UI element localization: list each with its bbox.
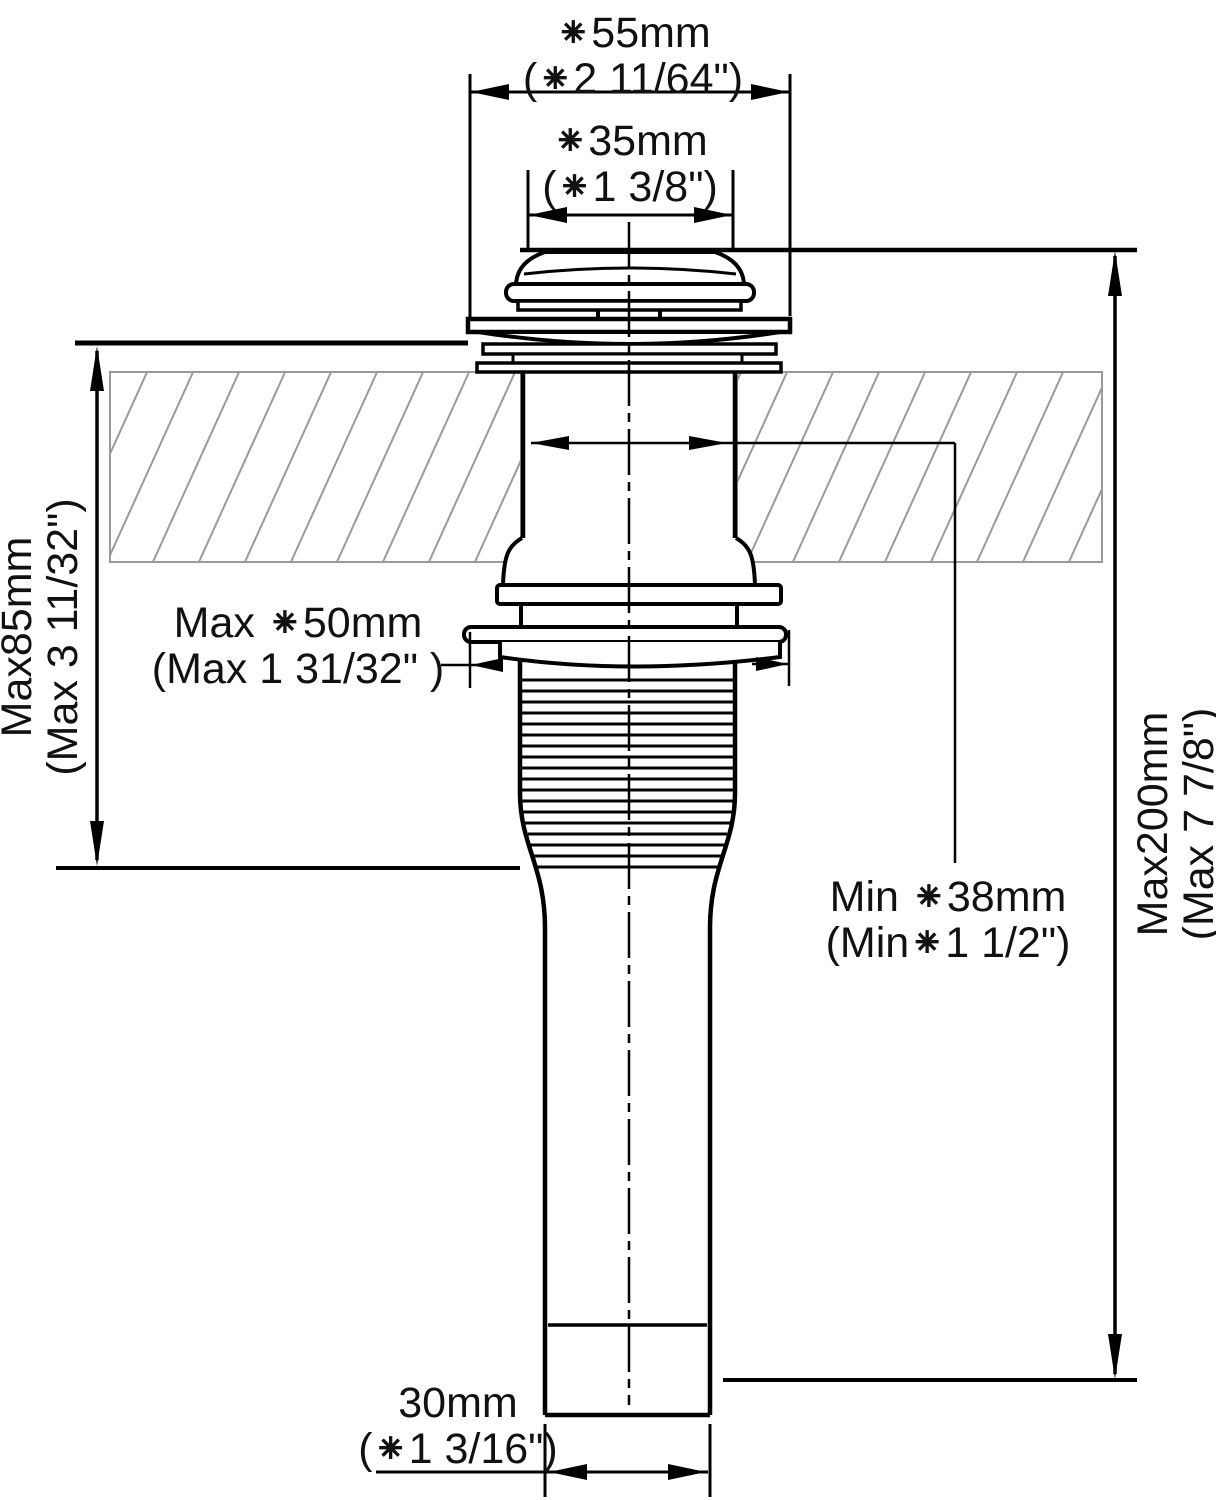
dim-label-imperial: (Max 7 7/8") [1176, 708, 1216, 941]
threaded-section [520, 660, 735, 1415]
dim-label-metric: Max ⁕50mm [152, 600, 445, 646]
dim-label-imperial: (Max 3 11/32") [40, 498, 86, 775]
dim-label-imperial: (Min⁕1 1/2") [826, 920, 1071, 966]
dim-label-min-hole-diameter: Min ⁕38mm (Min⁕1 1/2") [826, 874, 1071, 966]
dim-label-metric: Max200mm [1130, 708, 1176, 941]
countertop-left-section [60, 370, 608, 564]
dim-label-max-deck-thickness: Max85mm (Max 3 11/32") [0, 498, 86, 775]
locknut-assembly [464, 585, 786, 667]
dim-label-metric: Max85mm [0, 498, 40, 775]
dim-label-top-outer-diameter: ⁕55mm (⁕2 11/64") [523, 10, 743, 102]
dim-label-tailpipe-diameter: 30mm (⁕1 3/16") [358, 1380, 557, 1472]
dim-label-metric: 30mm [358, 1380, 557, 1426]
dim-label-top-inner-diameter: ⁕35mm (⁕1 3/8") [542, 118, 718, 210]
dim-label-metric: ⁕55mm [523, 10, 743, 56]
drain-diagram-linework [0, 0, 1216, 1500]
dim-label-max-overall-length: Max200mm (Max 7 7/8") [1130, 708, 1216, 941]
dim-label-imperial: (⁕1 3/8") [542, 164, 718, 210]
dim-label-metric: ⁕35mm [542, 118, 718, 164]
tailpipe [545, 1325, 710, 1415]
dim-label-imperial: (⁕2 11/64") [523, 56, 743, 102]
countertop-right-section [654, 370, 1156, 564]
dim-label-metric: Min ⁕38mm [826, 874, 1071, 920]
dim-label-max-locknut-diameter: Max ⁕50mm (Max 1 31/32" ) [152, 600, 445, 692]
dim-label-imperial: (Max 1 31/32" ) [152, 646, 445, 692]
dim-label-imperial: (⁕1 3/16") [358, 1426, 557, 1472]
drain-dimension-diagram: ⁕55mm (⁕2 11/64") ⁕35mm (⁕1 3/8") Max85m… [0, 0, 1216, 1500]
